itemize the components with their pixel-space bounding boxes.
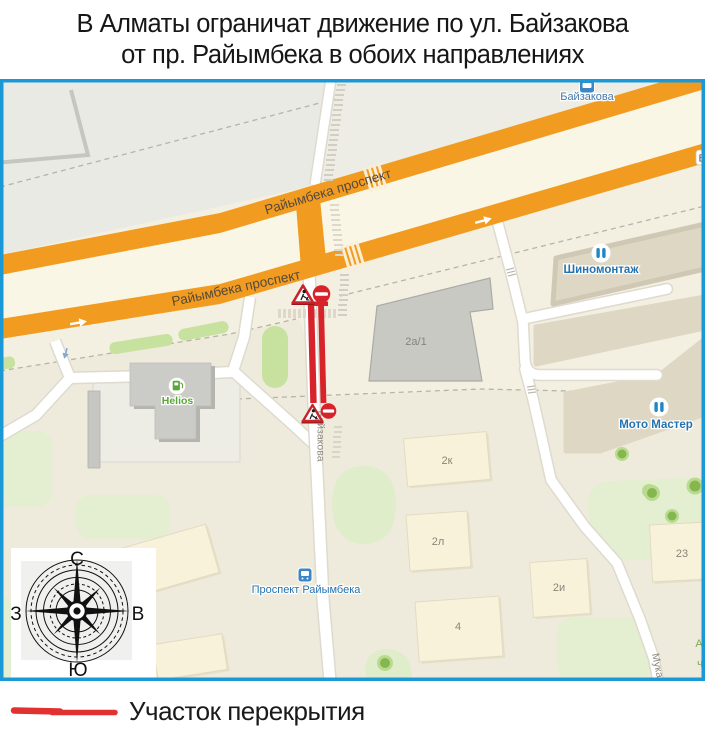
svg-text:2л: 2л [432,536,445,548]
svg-text:С: С [70,549,84,570]
svg-text:4: 4 [455,621,461,633]
svg-text:2и: 2и [553,582,565,594]
svg-text:В: В [132,604,145,625]
svg-text:Байзакова: Байзакова [560,91,614,103]
svg-text:Проспект Райымбека: Проспект Райымбека [252,584,362,596]
svg-text:Мото Мастер: Мото Мастер [619,419,693,431]
svg-text:Шиномонтаж: Шиномонтаж [564,264,640,276]
svg-text:З: З [10,604,21,625]
svg-text:2а/1: 2а/1 [405,336,426,348]
svg-text:23: 23 [676,548,688,560]
svg-text:2к: 2к [442,455,453,467]
svg-text:Helios: Helios [162,395,194,407]
